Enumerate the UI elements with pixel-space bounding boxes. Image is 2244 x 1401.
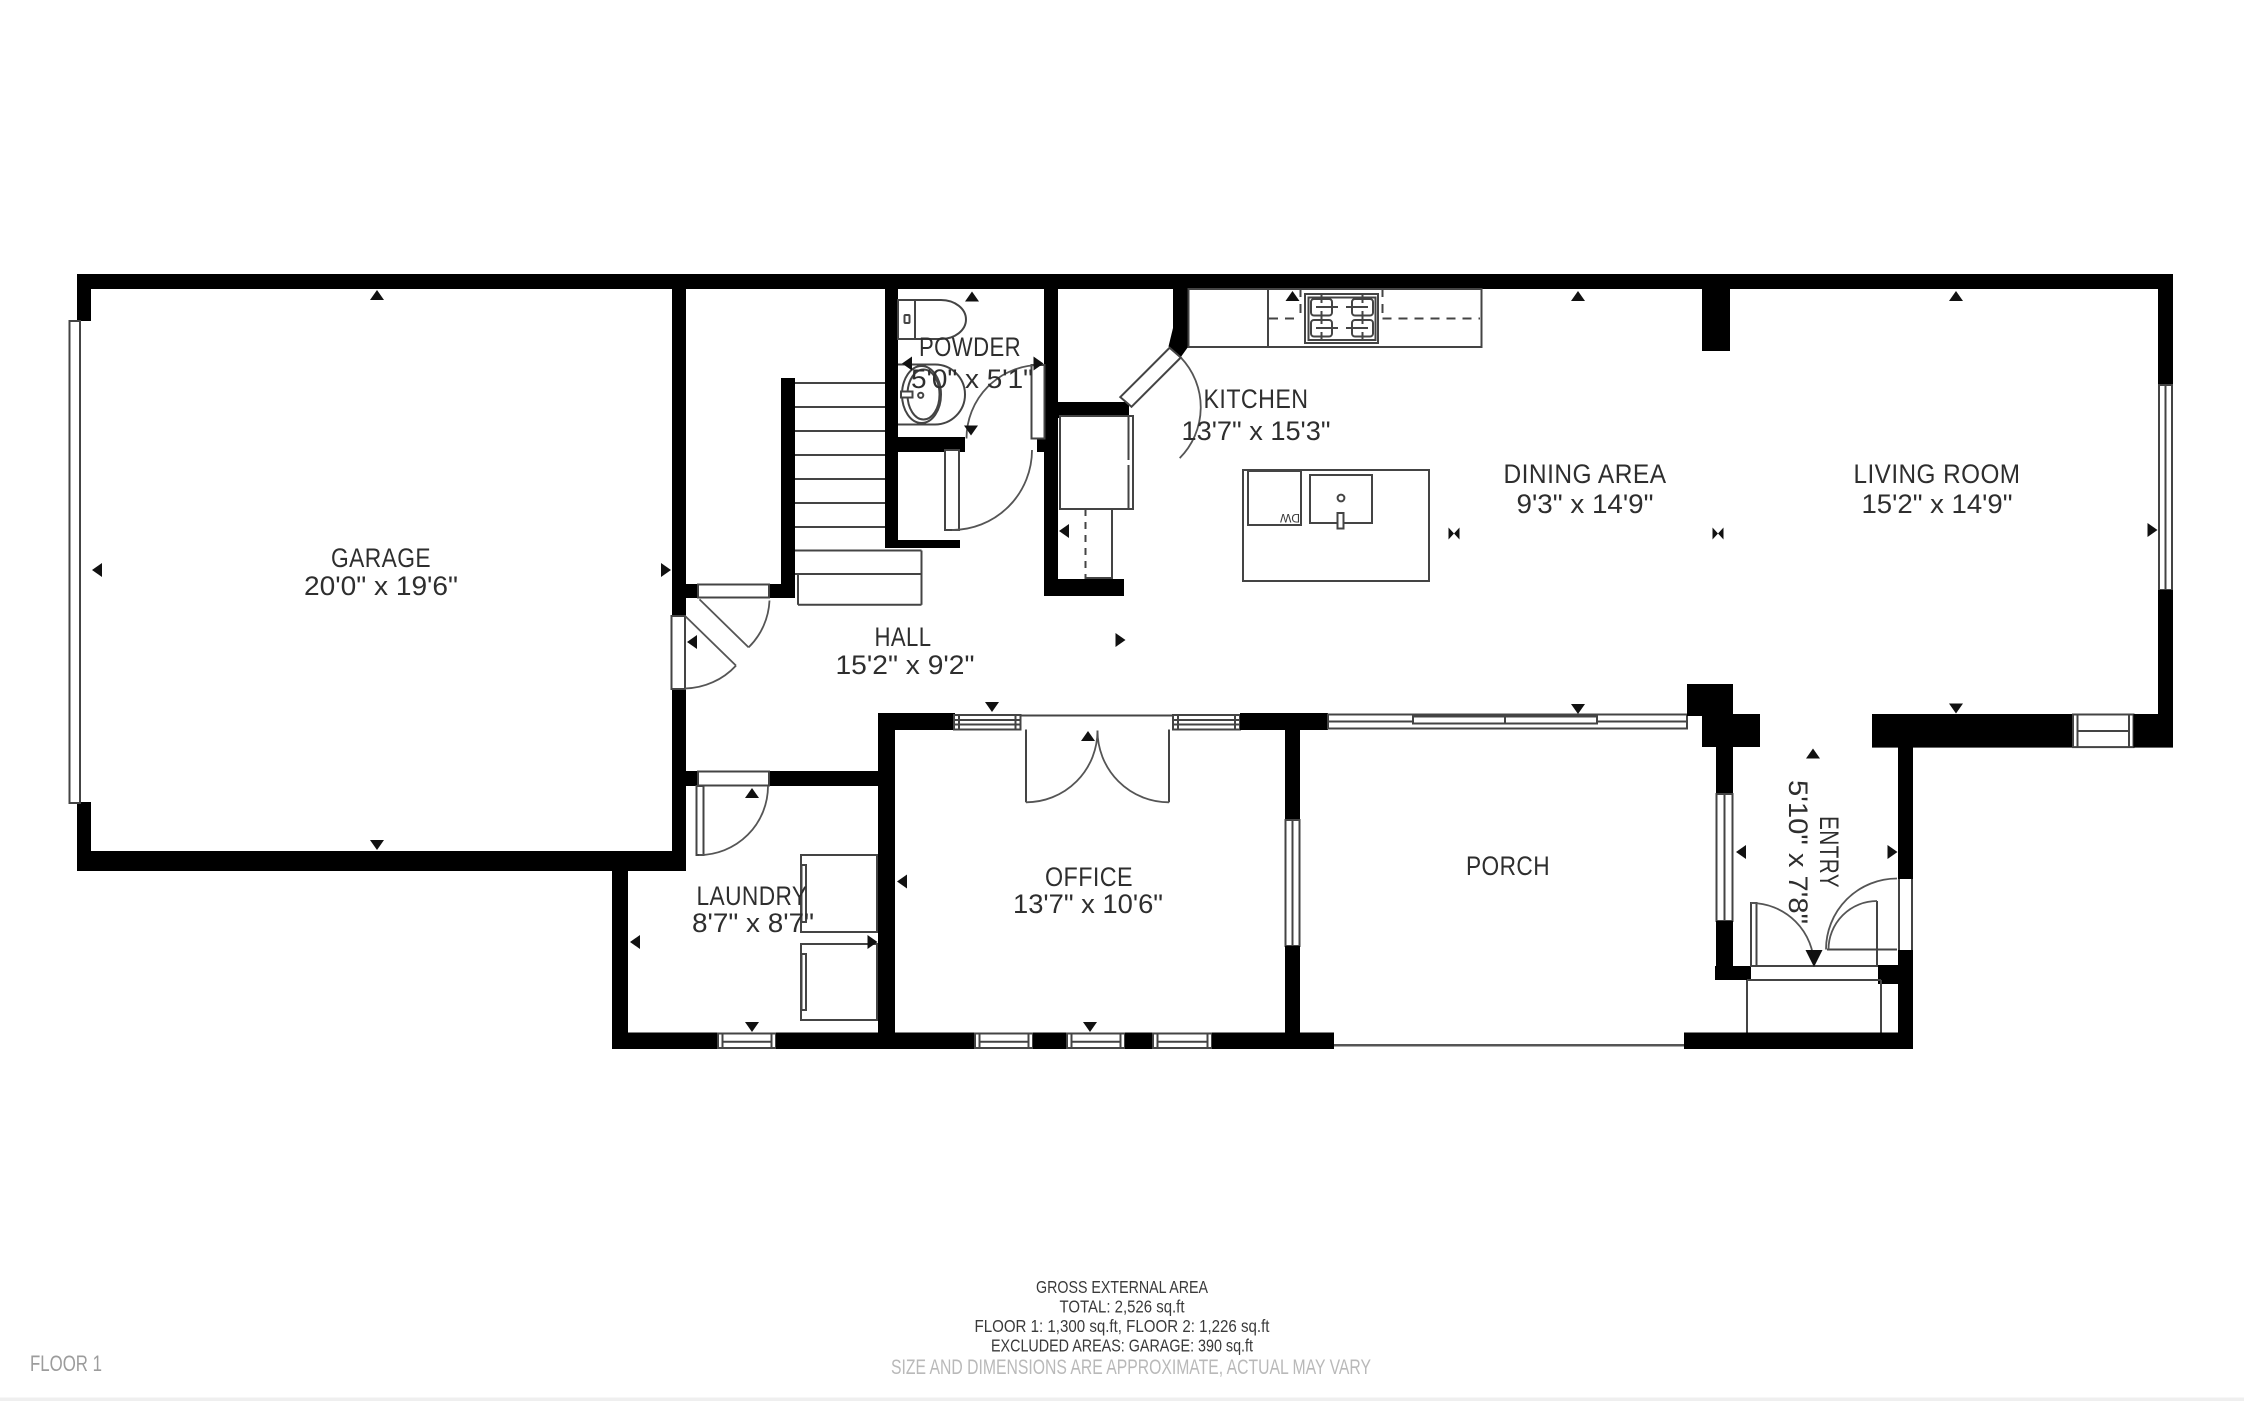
svg-text:PORCH: PORCH — [1466, 851, 1550, 881]
svg-text:5'0" x 5'1": 5'0" x 5'1" — [911, 364, 1033, 394]
svg-text:POWDER: POWDER — [919, 332, 1021, 362]
svg-text:DINING AREA: DINING AREA — [1504, 459, 1667, 489]
svg-text:15'2" x 14'9": 15'2" x 14'9" — [1862, 489, 2013, 519]
svg-text:TOTAL: 2,526 sq.ft: TOTAL: 2,526 sq.ft — [1060, 1297, 1185, 1317]
svg-text:13'7" x 15'3": 13'7" x 15'3" — [1182, 416, 1331, 446]
svg-text:GROSS EXTERNAL AREA: GROSS EXTERNAL AREA — [1036, 1277, 1208, 1297]
svg-text:ENTRY: ENTRY — [1814, 816, 1844, 888]
svg-text:EXCLUDED AREAS: GARAGE: 390 sq: EXCLUDED AREAS: GARAGE: 390 sq.ft — [991, 1336, 1253, 1356]
svg-text:HALL: HALL — [875, 622, 932, 652]
svg-text:13'7" x 10'6": 13'7" x 10'6" — [1013, 889, 1163, 919]
svg-text:FLOOR 1: 1,300 sq.ft, FLOOR 2:: FLOOR 1: 1,300 sq.ft, FLOOR 2: 1,226 sq.… — [975, 1316, 1270, 1336]
svg-text:15'2" x 9'2": 15'2" x 9'2" — [836, 650, 975, 680]
svg-text:20'0" x 19'6": 20'0" x 19'6" — [304, 571, 458, 601]
svg-text:KITCHEN: KITCHEN — [1204, 384, 1309, 414]
svg-text:8'7" x 8'7": 8'7" x 8'7" — [692, 908, 814, 938]
svg-text:SIZE AND DIMENSIONS ARE APPROX: SIZE AND DIMENSIONS ARE APPROXIMATE, ACT… — [891, 1356, 1371, 1379]
svg-text:LAUNDRY: LAUNDRY — [697, 881, 808, 911]
svg-text:5'10" x 7'8": 5'10" x 7'8" — [1783, 780, 1813, 924]
svg-text:FLOOR 1: FLOOR 1 — [30, 1351, 102, 1376]
svg-text:DW: DW — [1279, 511, 1300, 525]
svg-text:LIVING ROOM: LIVING ROOM — [1854, 459, 2021, 489]
svg-text:OFFICE: OFFICE — [1045, 862, 1133, 892]
svg-text:GARAGE: GARAGE — [331, 543, 431, 573]
svg-text:9'3" x 14'9": 9'3" x 14'9" — [1517, 489, 1654, 519]
